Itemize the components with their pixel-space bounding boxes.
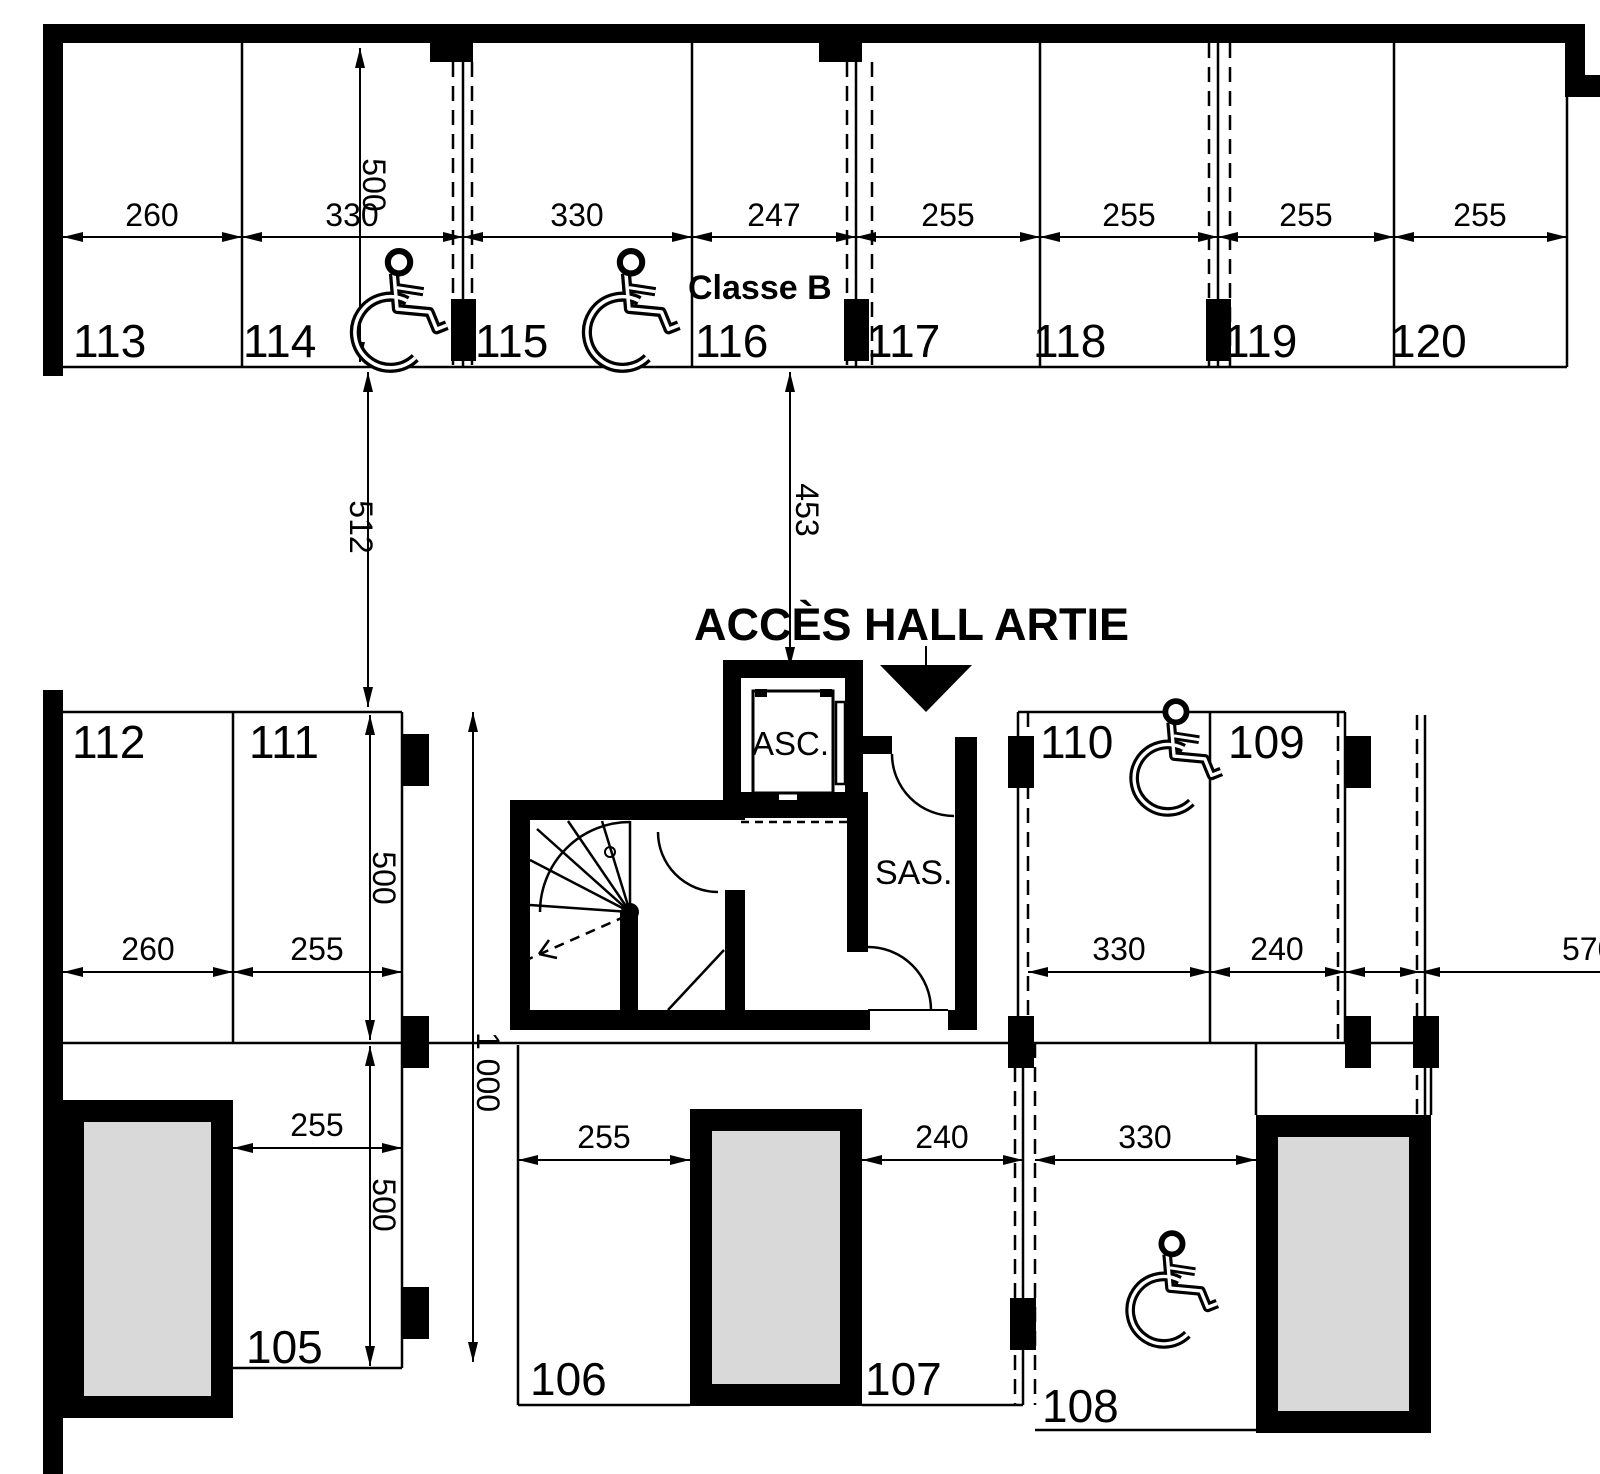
space-label-115: 115 <box>475 315 548 367</box>
dim-113: 260 <box>125 197 178 233</box>
space-label-108: 108 <box>1042 1380 1119 1432</box>
dim-106: 255 <box>577 1119 630 1155</box>
dim-right-edge: 570 <box>1562 931 1600 967</box>
dim-117: 255 <box>921 197 974 233</box>
dim-120: 255 <box>1453 197 1506 233</box>
dim-left-depth: 500 <box>366 851 402 904</box>
dim-116: 247 <box>747 197 800 233</box>
dim-111: 255 <box>290 931 343 967</box>
sas-label: SAS. <box>875 854 952 892</box>
dim-105: 255 <box>290 1107 343 1143</box>
dim-115: 330 <box>550 197 603 233</box>
space-label-107: 107 <box>865 1353 942 1405</box>
space-label-116: 116 <box>695 315 768 367</box>
dim-top-depth: 500 <box>356 158 392 211</box>
space-label-110: 110 <box>1040 716 1113 768</box>
space-label-119: 119 <box>1224 315 1297 367</box>
floor-plan-svg: 260 330 330 247 255 255 255 255 500 512 … <box>0 0 1600 1474</box>
dim-corridor: 1 000 <box>470 1032 506 1112</box>
dim-110: 330 <box>1092 931 1145 967</box>
space-label-118: 118 <box>1033 315 1106 367</box>
dim-107: 240 <box>915 1119 968 1155</box>
floor-plan: 260 330 330 247 255 255 255 255 500 512 … <box>0 0 1600 1474</box>
shaft-right <box>1256 1115 1431 1433</box>
dim-108: 330 <box>1118 1119 1171 1155</box>
space-label-114: 114 <box>243 315 316 367</box>
space-label-109: 109 <box>1228 716 1305 768</box>
space-label-113: 113 <box>73 315 146 367</box>
shaft-left <box>62 1100 233 1418</box>
dim-105-depth: 500 <box>366 1178 402 1231</box>
space-label-106: 106 <box>530 1353 607 1405</box>
elevator-label: ASC. <box>752 725 829 762</box>
space-label-117: 117 <box>867 315 940 367</box>
dim-aisle-left: 512 <box>343 500 379 553</box>
space-label-111: 111 <box>249 716 319 768</box>
space-label-120: 120 <box>1390 315 1467 367</box>
shaft-middle <box>690 1109 862 1406</box>
space-label-112: 112 <box>72 716 145 768</box>
classe-b-label: Classe B <box>688 269 832 307</box>
dim-109: 240 <box>1250 931 1303 967</box>
dim-hall-access: 453 <box>789 483 825 536</box>
dim-118: 255 <box>1102 197 1155 233</box>
space-label-105: 105 <box>246 1321 323 1373</box>
access-hall-label: ACCÈS HALL ARTIE <box>694 599 1129 650</box>
dim-119: 255 <box>1279 197 1332 233</box>
dim-112: 260 <box>121 931 174 967</box>
